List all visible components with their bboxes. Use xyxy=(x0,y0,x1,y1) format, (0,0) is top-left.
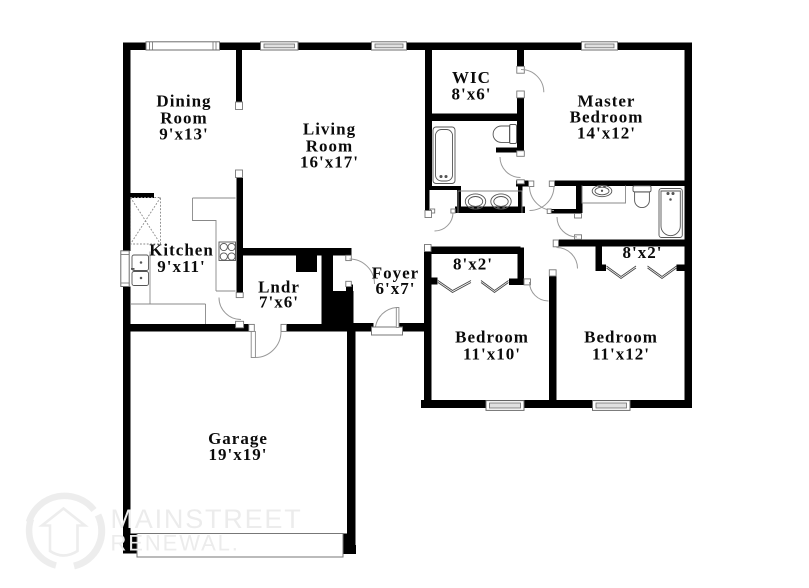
svg-text:14'x12': 14'x12' xyxy=(577,124,636,143)
svg-text:8'x2': 8'x2' xyxy=(623,243,663,262)
svg-text:11'x10': 11'x10' xyxy=(463,345,521,364)
svg-text:RENEWAL.: RENEWAL. xyxy=(111,531,240,556)
svg-text:8'x2': 8'x2' xyxy=(453,255,493,274)
svg-text:9'x13': 9'x13' xyxy=(159,125,208,144)
svg-text:16'x17': 16'x17' xyxy=(300,153,359,172)
svg-text:19'x19': 19'x19' xyxy=(209,445,268,464)
svg-text:6'x7': 6'x7' xyxy=(376,279,416,298)
svg-text:9'x11': 9'x11' xyxy=(157,257,206,276)
svg-text:11'x12': 11'x12' xyxy=(592,345,650,364)
svg-text:7'x6': 7'x6' xyxy=(259,293,299,312)
svg-text:8'x6': 8'x6' xyxy=(452,85,492,104)
svg-text:MAINSTREET: MAINSTREET xyxy=(111,504,303,534)
